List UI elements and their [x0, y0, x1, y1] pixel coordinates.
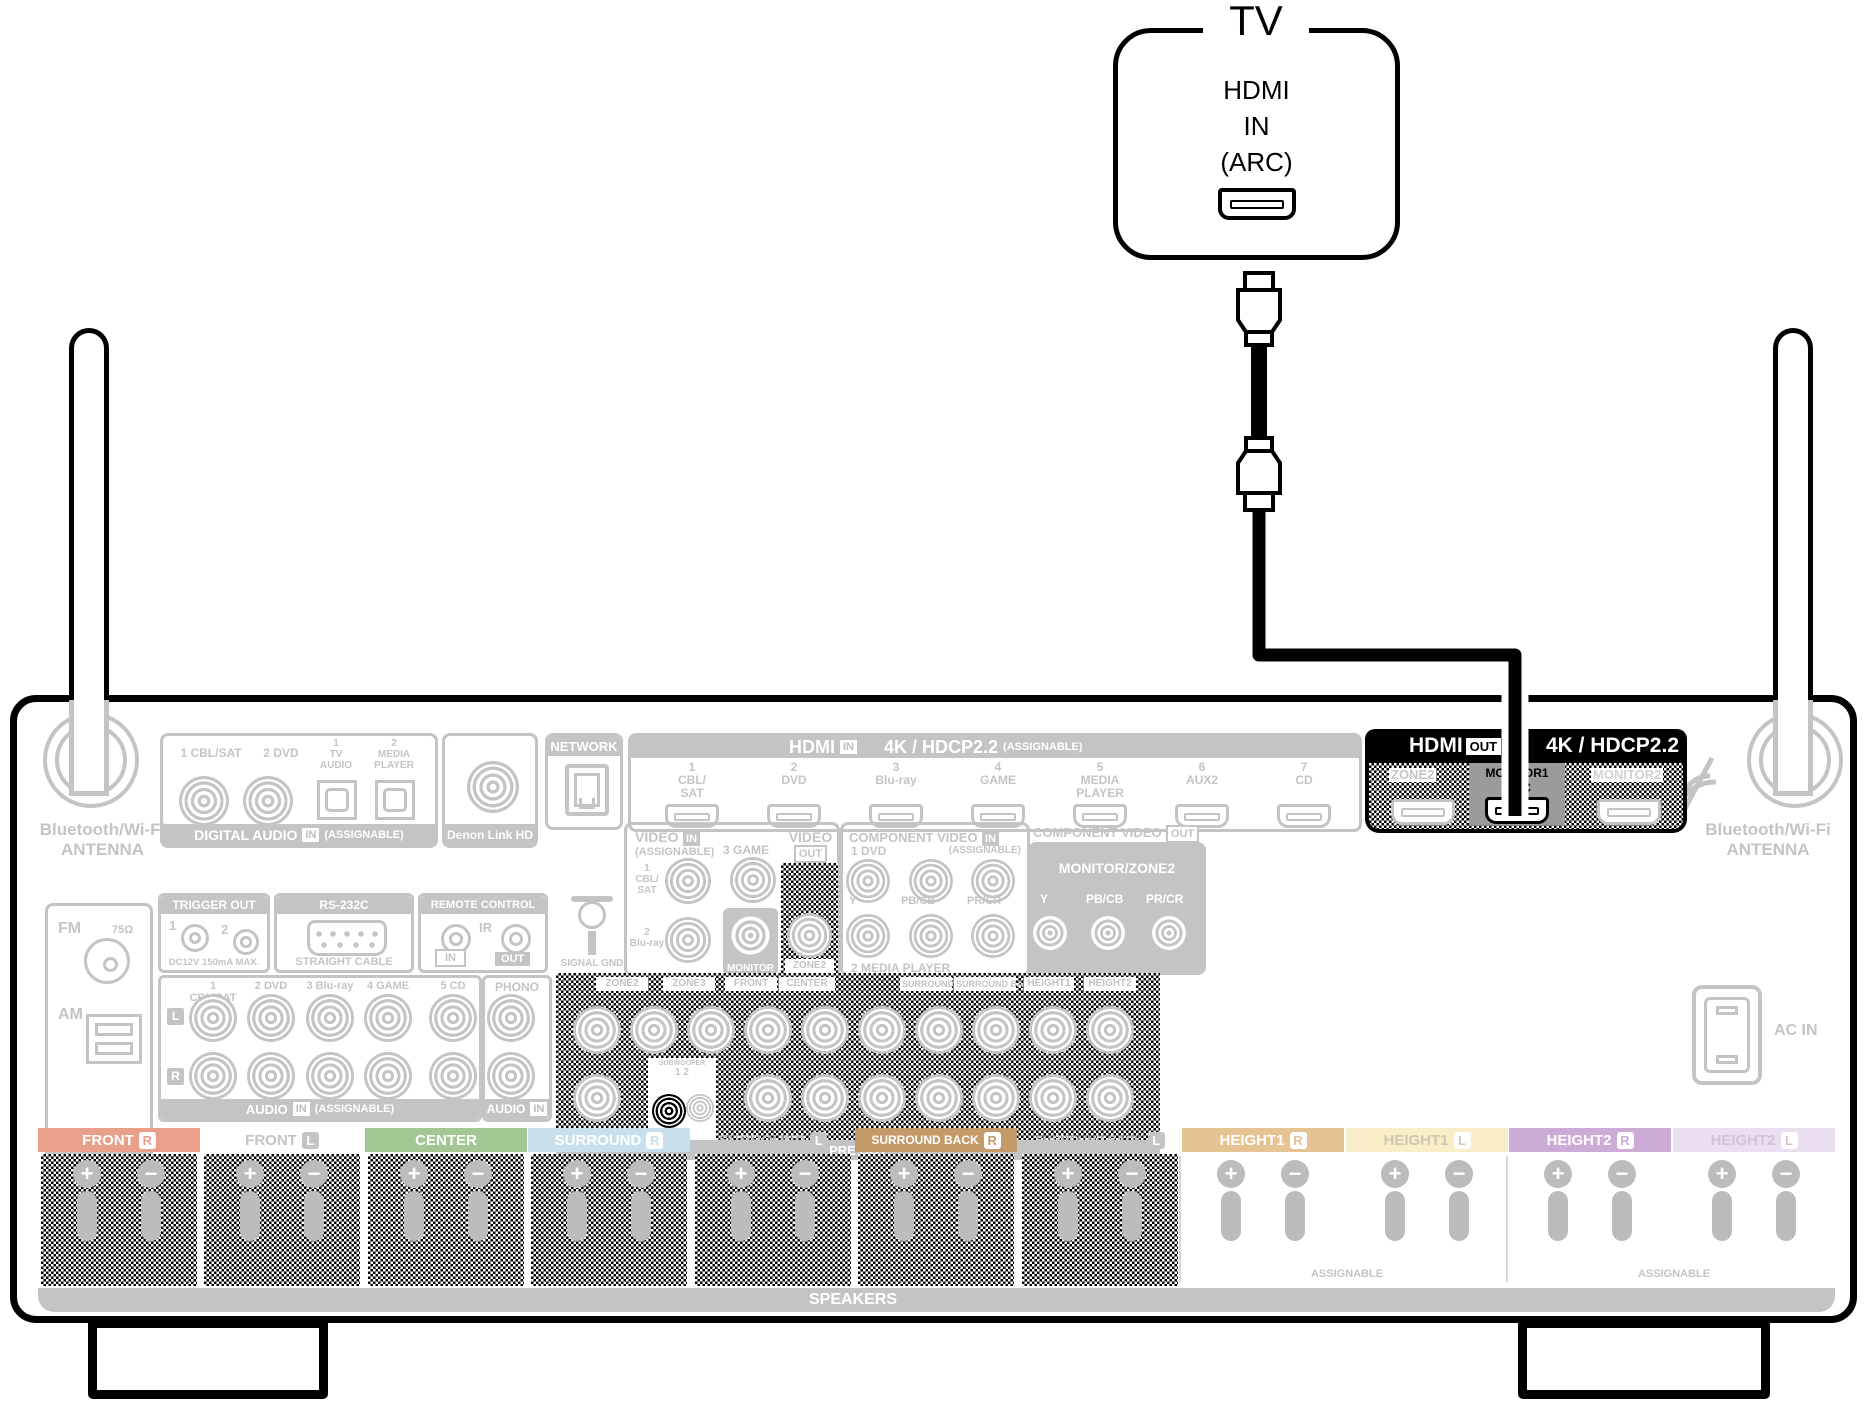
hdmi-in-port-cell: 7 CD [1253, 761, 1355, 831]
trigger-header: TRIGGER OUT [161, 896, 267, 914]
hdmi-out-header: HDMI OUT 4K / HDCP2.2 [1365, 729, 1687, 763]
speaker-terminals: + − [41, 1154, 197, 1286]
video-game-jack [730, 857, 776, 903]
antenna-rod-right-inner [1773, 700, 1813, 796]
video-out-badge: OUT [794, 845, 827, 863]
trigger-2-jack [233, 929, 259, 955]
hdmi-in-port-cell: 1 CBL/ SAT [641, 761, 743, 831]
audio-in-badge: IN [293, 1102, 310, 1116]
video-zone2-label: ZONE2 [785, 959, 834, 973]
audio-jack [429, 994, 477, 1042]
speaker-header: SURROUNDL [692, 1128, 854, 1152]
binding-post: − [1115, 1160, 1149, 1286]
network-label: NETWORK [550, 739, 617, 754]
preout-jack [630, 1006, 678, 1054]
speaker-center: CENTER + − [365, 1128, 527, 1288]
phono-footer: AUDIO IN [485, 1099, 549, 1119]
binding-post: + [560, 1160, 594, 1286]
speaker-channel-badge: L [1454, 1132, 1471, 1149]
digital-audio-assignable: (ASSIGNABLE) [324, 829, 403, 841]
plus-terminal: + [400, 1160, 428, 1188]
speaker-height2-l: HEIGHT2L + − [1673, 1128, 1835, 1288]
speaker-terminals: + − [695, 1154, 851, 1286]
phono-in-badge: IN [530, 1102, 547, 1116]
hdmi-out-badge: OUT [1466, 738, 1501, 755]
preout-jack [1086, 1006, 1134, 1054]
speaker-height2-r: HEIGHT2R + − [1509, 1128, 1671, 1288]
fm-label: FM [58, 920, 81, 938]
hdmi-out-spec: 4K / HDCP2.2 [1546, 734, 1679, 758]
plus-terminal: + [727, 1160, 755, 1188]
component-out-pr-label: PR/CR [1146, 892, 1183, 906]
subwoofer2-jack [686, 1094, 714, 1122]
speaker-surround-l: SURROUNDL + − [692, 1128, 854, 1288]
audio-left-badge: L [167, 1008, 184, 1025]
remote-ir-label: IR [479, 920, 492, 935]
component-out-pb-label: PB/CB [1086, 892, 1123, 906]
audio-col-label: 5 CD [425, 980, 481, 992]
component-out-y-jack [1030, 913, 1070, 953]
component-in-y-label: Y [849, 895, 856, 907]
preout-zone2-label: ZONE2 [596, 977, 648, 991]
hdmi-port-label: 3 Blu-ray [845, 761, 947, 787]
denon-link-jack [467, 761, 519, 813]
receiver-foot-left [88, 1319, 328, 1399]
component-out-title: COMPONENT VIDEO [1033, 825, 1162, 840]
remote-in-badge-wrap: IN [435, 948, 466, 967]
binding-post: + [1051, 1160, 1085, 1286]
signal-gnd-wing [571, 896, 613, 902]
phono-l-jack [487, 994, 535, 1042]
speaker-header: SURROUND BACKL [1019, 1128, 1181, 1152]
speaker-height1-l: HEIGHT1L + − [1346, 1128, 1508, 1288]
phono-section: PHONO AUDIO IN [482, 975, 552, 1122]
audio-col-label: 3 Blu-ray [302, 980, 358, 992]
audio-assignable: (ASSIGNABLE) [315, 1103, 394, 1115]
plug-collar-bottom [1246, 438, 1272, 451]
speaker-terminals: + − [204, 1154, 360, 1286]
speaker-terminals: + − [1185, 1154, 1341, 1286]
preout-jack [801, 1074, 849, 1122]
speaker-label: SURROUND BACK [1035, 1133, 1142, 1147]
preout-jack [915, 1006, 963, 1054]
remote-header: REMOTE CONTROL [421, 896, 545, 914]
height2-assignable-label: ASSIGNABLE [1515, 1268, 1833, 1280]
component-out-pb-jack [1088, 913, 1128, 953]
speaker-label: FRONT [82, 1132, 134, 1149]
speaker-terminals: + − [368, 1154, 524, 1286]
binding-post: − [297, 1160, 331, 1286]
hdmi-out-title: HDMI [1409, 734, 1463, 758]
speaker-label: HEIGHT1 [1383, 1132, 1448, 1149]
video-out-badge-wrap: OUT [783, 844, 838, 863]
rs232-note: STRAIGHT CABLE [277, 956, 411, 968]
divider [1506, 1156, 1508, 1282]
trigger-1-label: 1 [169, 918, 176, 933]
plug-body-top [1238, 290, 1280, 332]
component-in-section: COMPONENT VIDEO IN (ASSIGNABLE) 1 DVD Y … [840, 822, 1030, 977]
audio-jack [306, 1052, 354, 1100]
speaker-label: SURROUND BACK [871, 1133, 978, 1147]
preout-jack [801, 1006, 849, 1054]
preout-jack [972, 1074, 1020, 1122]
component-out-badge: OUT [1166, 825, 1199, 843]
component-in-pr2-jack [971, 914, 1015, 958]
wifi-antenna-right [1773, 328, 1813, 700]
phono-label: PHONO [485, 980, 549, 994]
audio-jack [429, 1052, 477, 1100]
component-in-pb-label: PB/CB [901, 895, 935, 907]
speaker-terminals: + − [858, 1154, 1014, 1286]
binding-post: + [724, 1160, 758, 1286]
preout-surround-label: SURROUND [900, 977, 952, 991]
hdmi-port-icon [1277, 804, 1331, 828]
hdmi-in-header: HDMI IN 4K / HDCP2.2 (ASSIGNABLE) [631, 736, 1359, 758]
trigger-2-label: 2 [221, 922, 228, 937]
coaxial-2-label: 2 DVD [251, 746, 311, 760]
speaker-channel-badge: R [646, 1132, 663, 1149]
wifi-antenna-left [69, 328, 109, 700]
remote-control-section: REMOTE CONTROL IR IN OUT [418, 893, 548, 973]
component-out-monitor-label: MONITOR/ZONE2 [1028, 860, 1206, 876]
subwoofer-label: SUBWOOFER [648, 1060, 716, 1067]
preout-jack [744, 1074, 792, 1122]
tv-hdmi-port-icon [1218, 188, 1296, 220]
component-out-panel: MONITOR/ZONE2 Y PB/CB PR/CR [1028, 842, 1206, 975]
denon-link-section: Denon Link HD [442, 733, 538, 848]
preout-height2-label: HEIGHT2 [1084, 977, 1136, 991]
audio-jack [306, 994, 354, 1042]
speaker-front-r: FRONTR + − [38, 1128, 200, 1288]
minus-terminal: − [464, 1160, 492, 1188]
audio-jack [247, 1052, 295, 1100]
minus-terminal: − [1445, 1160, 1473, 1188]
speaker-label: CENTER [415, 1132, 477, 1149]
binding-post: + [887, 1160, 921, 1286]
am-terminal [86, 1014, 142, 1064]
video-cbl-label: 1 CBL/ SAT [629, 863, 665, 896]
audio-col-label: 2 DVD [243, 980, 299, 992]
fm-antenna-jack [84, 938, 130, 984]
speaker-terminals: + − [531, 1154, 687, 1286]
speakers-footer: SPEAKERS [38, 1288, 1835, 1312]
ac-in-label: AC IN [1774, 1022, 1818, 1040]
minus-terminal: − [1772, 1160, 1800, 1188]
arc-label: ARC [1469, 780, 1565, 795]
network-header: NETWORK [548, 736, 620, 756]
video-monitor-panel: MONITOR [723, 908, 778, 975]
preout-jack [573, 1006, 621, 1054]
plus-terminal: + [1381, 1160, 1409, 1188]
preout-jack [858, 1074, 906, 1122]
coaxial-cbl-sat-jack [179, 776, 229, 826]
minus-terminal: − [1118, 1160, 1146, 1188]
preout-jack [744, 1006, 792, 1054]
subwoofer-nums: 1 2 [648, 1067, 716, 1078]
audio-jack [189, 1052, 237, 1100]
antenna-left-label: Bluetooth/Wi-Fi ANTENNA [25, 820, 180, 860]
hdmi-in-port-cell: 4 GAME [947, 761, 1049, 831]
audio-footer-title: AUDIO [246, 1102, 288, 1117]
optical-tv-audio-jack [317, 780, 357, 820]
audio-col-label: 4 GAME [360, 980, 416, 992]
speaker-channel-badge: L [302, 1132, 319, 1149]
binding-post: − [788, 1160, 822, 1286]
antenna-right-label: Bluetooth/Wi-Fi ANTENNA [1688, 820, 1848, 860]
tv-in-label: IN [1113, 108, 1400, 144]
preout-front-label: FRONT [725, 977, 777, 991]
binding-post: + [70, 1160, 104, 1286]
av-receiver-tv-connection-diagram: Bluetooth/Wi-Fi ANTENNA Bluetooth/Wi-Fi … [0, 0, 1867, 1406]
minus-terminal: − [954, 1160, 982, 1188]
plus-terminal: + [73, 1160, 101, 1188]
plug-collar-top [1246, 332, 1272, 345]
video-cbl-jack [665, 858, 711, 904]
speaker-header: HEIGHT2L [1673, 1128, 1835, 1152]
tv-arc-label: (ARC) [1113, 144, 1400, 180]
speaker-label: HEIGHT2 [1546, 1132, 1611, 1149]
binding-post: − [134, 1160, 168, 1286]
rs232-title: RS-232C [319, 898, 368, 912]
digital-audio-title: DIGITAL AUDIO [194, 827, 297, 843]
component-in-pb2-jack [909, 914, 953, 958]
hdmi-out-section: HDMI OUT 4K / HDCP2.2 MONITOR1 ARC ZONE2… [1365, 729, 1687, 833]
component-in-title: COMPONENT VIDEO [849, 830, 978, 845]
remote-in-badge: IN [435, 949, 466, 967]
speaker-surround-back-r: SURROUND BACKR + − [855, 1128, 1017, 1288]
minus-terminal: − [1608, 1160, 1636, 1188]
speaker-header: CENTER [365, 1128, 527, 1152]
video-section: VIDEO IN (ASSIGNABLE) 3 GAME 1 CBL/ SAT … [624, 822, 840, 977]
optical-2-label: 2 MEDIA PLAYER [363, 738, 425, 771]
video-in-header: VIDEO IN [635, 829, 700, 847]
plus-terminal: + [890, 1160, 918, 1188]
speaker-channel-badge: R [1290, 1132, 1307, 1149]
speaker-channel-badge: R [1617, 1132, 1634, 1149]
preout-surround-back-label: SURROUND BACK [954, 977, 1016, 991]
speaker-height1-r: HEIGHT1R + − [1182, 1128, 1344, 1288]
speaker-terminals: + − [1512, 1154, 1668, 1286]
video-assignable: (ASSIGNABLE) [635, 846, 714, 858]
trigger-title: TRIGGER OUT [172, 898, 255, 912]
audio-in-footer: AUDIO IN (ASSIGNABLE) [161, 1099, 479, 1119]
speaker-terminals: + − [1676, 1154, 1832, 1286]
ac-inlet [1692, 985, 1762, 1085]
remote-out-badge-wrap: OUT [495, 949, 530, 967]
preout-jack [1029, 1074, 1077, 1122]
divider [1179, 1156, 1181, 1282]
speaker-channel-badge: L [810, 1132, 827, 1149]
coaxial-dvd-jack [243, 776, 293, 826]
speaker-header: HEIGHT1R [1182, 1128, 1344, 1152]
speaker-terminals: + − [1022, 1154, 1178, 1286]
phono-footer-title: AUDIO [487, 1102, 526, 1116]
video-game-label: 3 GAME [723, 843, 769, 857]
speaker-label: SURROUND [555, 1132, 642, 1149]
plus-terminal: + [1054, 1160, 1082, 1188]
preout-jack [1029, 1006, 1077, 1054]
preout-jack [1086, 1074, 1134, 1122]
preout-jack [858, 1006, 906, 1054]
height1-assignable-label: ASSIGNABLE [1188, 1268, 1506, 1280]
hdmi-monitor1-port [1485, 797, 1549, 824]
trigger-note: DC12V 150mA MAX. [161, 957, 267, 968]
hdmi-in-port-cell: 3 Blu-ray [845, 761, 947, 831]
denon-link-label: Denon Link HD [447, 828, 533, 842]
antenna-rod-left-inner [69, 700, 109, 796]
hdmi-port-label: 7 CD [1253, 761, 1355, 787]
component-in-y2-jack [846, 914, 890, 958]
rs232-dsub-connector [307, 920, 387, 956]
audio-jack [364, 1052, 412, 1100]
plus-terminal: + [1544, 1160, 1572, 1188]
audio-jack [189, 994, 237, 1042]
video-in-badge: IN [683, 832, 700, 846]
video-bluray-label: 2 Blu-ray [627, 927, 667, 949]
preout-jack [915, 1074, 963, 1122]
hdmi-port-label: 2 DVD [743, 761, 845, 787]
hdmi-in-ports: 1 CBL/ SAT 2 DVD 3 Blu-ray 4 GAME 5 MEDI… [641, 761, 1355, 831]
minus-terminal: − [1281, 1160, 1309, 1188]
remote-title: REMOTE CONTROL [431, 899, 536, 911]
audio-jack [247, 994, 295, 1042]
preout-jack [687, 1006, 735, 1054]
tv-hdmi-in-arc-label: HDMI IN (ARC) [1113, 72, 1400, 180]
speaker-header: HEIGHT1L [1346, 1128, 1508, 1152]
speaker-channel-badge: L [1781, 1132, 1798, 1149]
component-in-badge: IN [982, 832, 999, 846]
hdmi-monitor2-label: MONITOR2 [1591, 768, 1663, 782]
trigger-1-jack [181, 924, 209, 952]
digital-audio-in-badge: IN [302, 828, 319, 842]
video-out-title: VIDEO [783, 829, 838, 845]
speaker-label: SURROUND [719, 1132, 806, 1149]
trigger-out-section: TRIGGER OUT 1 2 DC12V 150mA MAX. [158, 893, 270, 973]
hdmi-in-port-cell: 2 DVD [743, 761, 845, 831]
hdmi-in-badge: IN [840, 740, 857, 754]
plug-cable-mid [1253, 345, 1265, 438]
coaxial-1-label: 1 CBL/SAT [173, 746, 249, 760]
receiver-foot-right [1518, 1319, 1770, 1399]
video-in-title: VIDEO [635, 829, 679, 845]
speaker-channel-badge: R [139, 1132, 156, 1149]
monitor1-label: MONITOR1 [1469, 766, 1565, 780]
hdmi-port-label: 5 MEDIA PLAYER [1049, 761, 1151, 800]
hdmi-in-port-cell: 5 MEDIA PLAYER [1049, 761, 1151, 831]
speaker-terminals: + − [1349, 1154, 1505, 1286]
hdmi-monitor2-port [1597, 799, 1661, 825]
hdmi-cable-plugs [1238, 273, 1280, 510]
minus-terminal: − [300, 1160, 328, 1188]
video-zone2-jack [787, 913, 832, 958]
component-in-assignable: (ASSIGNABLE) [949, 845, 1021, 856]
hdmi-in-spec: 4K / HDCP2.2 [884, 737, 998, 758]
video-zone2-column: ZONE2 [781, 863, 838, 975]
speaker-header: HEIGHT2R [1509, 1128, 1671, 1152]
speakers-footer-label: SPEAKERS [773, 1291, 933, 1309]
digital-audio-footer: DIGITAL AUDIO IN (ASSIGNABLE) [163, 824, 435, 845]
plus-terminal: + [236, 1160, 264, 1188]
audio-in-section: 1 CBL/SAT 2 DVD 3 Blu-ray 4 GAME 5 CD L … [158, 975, 482, 1122]
plus-terminal: + [563, 1160, 591, 1188]
video-bluray-jack [665, 917, 711, 963]
hdmi-out-body: MONITOR1 ARC ZONE2 MONITOR2 [1365, 763, 1687, 833]
network-rj45-port [565, 764, 609, 816]
binding-post: − [461, 1160, 495, 1286]
speaker-header: SURROUND BACKR [855, 1128, 1017, 1152]
audio-jack [364, 994, 412, 1042]
preout-jack [573, 1074, 621, 1122]
hdmi-in-title: HDMI [789, 737, 835, 758]
am-label: AM [58, 1006, 83, 1024]
tv-hdmi-label: HDMI [1113, 72, 1400, 108]
speaker-channel-badge: L [1148, 1132, 1165, 1149]
component-out-y-label: Y [1040, 892, 1048, 906]
minus-terminal: − [137, 1160, 165, 1188]
optical-media-player-jack [375, 780, 415, 820]
speaker-label: HEIGHT1 [1219, 1132, 1284, 1149]
component-in-pr-label: PR/CR [967, 895, 1001, 907]
speaker-front-l: FRONTL + − [201, 1128, 363, 1288]
rs232-header: RS-232C [277, 896, 411, 914]
preout-jack [972, 1006, 1020, 1054]
speaker-label: HEIGHT2 [1710, 1132, 1775, 1149]
speaker-surround-r: SURROUNDR + − [528, 1128, 690, 1288]
speaker-header: FRONTL [201, 1128, 363, 1152]
speaker-header: SURROUNDR [528, 1128, 690, 1152]
plus-terminal: + [1217, 1160, 1245, 1188]
hdmi-port-label: 1 CBL/ SAT [641, 761, 743, 800]
minus-terminal: − [791, 1160, 819, 1188]
video-monitor-jack [728, 913, 773, 958]
hdmi-zone2-label: ZONE2 [1389, 768, 1436, 782]
fm-impedance-label: 75Ω [112, 924, 133, 936]
monitor1-highlight-panel: MONITOR1 ARC [1469, 763, 1565, 825]
hdmi-port-label: 4 GAME [947, 761, 1049, 787]
component-out-header: COMPONENT VIDEO OUT [1033, 824, 1199, 843]
denon-link-footer: Denon Link HD [445, 824, 535, 845]
audio-right-badge: R [167, 1068, 184, 1085]
remote-out-badge: OUT [495, 952, 530, 966]
hdmi-in-port-cell: 6 AUX2 [1151, 761, 1253, 831]
binding-post: + [233, 1160, 267, 1286]
plug-tip-bottom [1245, 493, 1273, 510]
digital-audio-section: 1 CBL/SAT 2 DVD 1 TV AUDIO 2 MEDIA PLAYE… [160, 733, 438, 848]
plus-terminal: + [1708, 1160, 1736, 1188]
subwoofer1-jack [652, 1094, 686, 1128]
speaker-label: FRONT [245, 1132, 297, 1149]
fm-am-section: FM 75Ω AM ANTENNA [45, 903, 153, 1161]
signal-gnd-label: SIGNAL GND [548, 958, 636, 969]
component-in-dvd-label: 1 DVD [851, 844, 886, 858]
speakers-section: FRONTR + − FRONTL + − CENTER + − SURROUN… [38, 1128, 1835, 1312]
signal-gnd-screw [578, 901, 606, 929]
plug-body-bottom [1238, 451, 1280, 493]
tv-title: TV [1203, 0, 1309, 42]
hdmi-zone2-port [1391, 799, 1455, 825]
preout-center-label: CENTER [779, 977, 835, 991]
hdmi-in-section: HDMI IN 4K / HDCP2.2 (ASSIGNABLE) 1 CBL/… [628, 733, 1362, 832]
binding-post: − [624, 1160, 658, 1286]
network-section: NETWORK [545, 733, 623, 830]
minus-terminal: − [627, 1160, 655, 1188]
speaker-header: FRONTR [38, 1128, 200, 1152]
signal-gnd-stem [588, 931, 596, 955]
binding-post: − [951, 1160, 985, 1286]
preout-height1-label: HEIGHT1 [1024, 977, 1074, 991]
optical-1-label: 1 TV AUDIO [313, 738, 359, 771]
hdmi-in-assignable: (ASSIGNABLE) [1003, 741, 1082, 753]
